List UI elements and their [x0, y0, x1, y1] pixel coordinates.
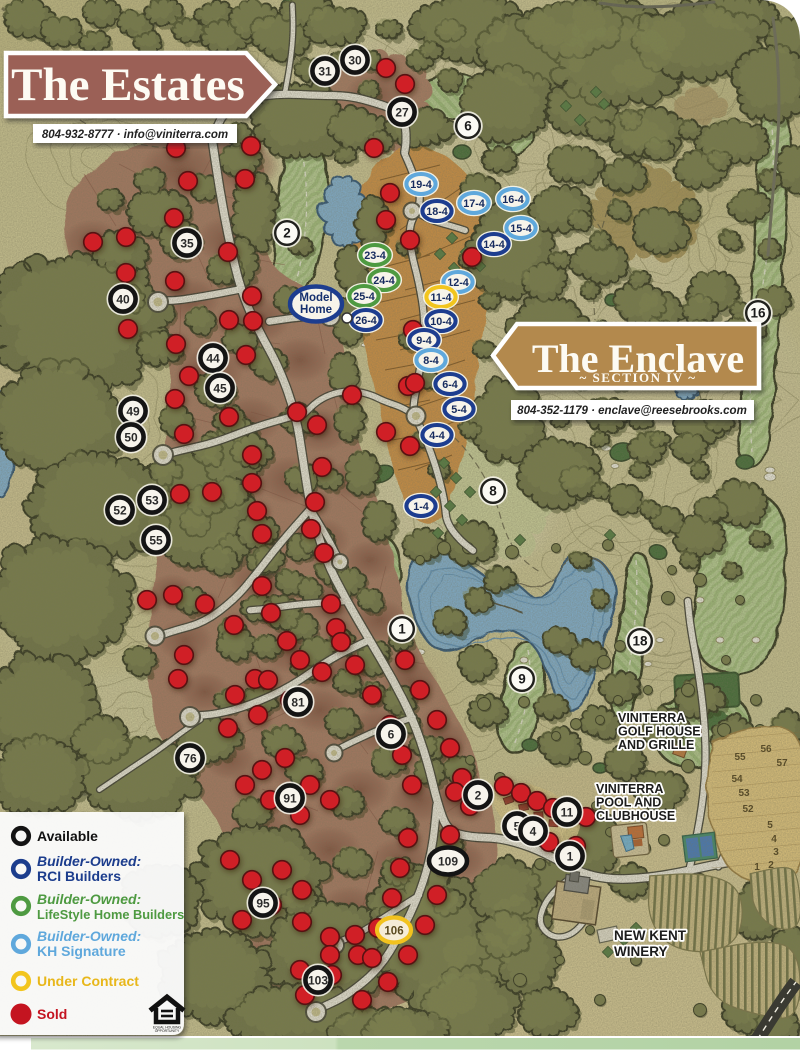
svg-text:26-4: 26-4: [355, 315, 377, 327]
svg-text:GOLF HOUSE: GOLF HOUSE: [618, 725, 701, 739]
svg-text:14-4: 14-4: [483, 239, 505, 251]
svg-text:OPPORTUNITY: OPPORTUNITY: [155, 1029, 180, 1033]
svg-text:44: 44: [206, 351, 220, 365]
svg-text:10-4: 10-4: [430, 316, 452, 328]
svg-text:55: 55: [149, 533, 163, 547]
svg-text:POOL AND: POOL AND: [596, 796, 661, 810]
svg-text:Under Contract: Under Contract: [37, 973, 139, 989]
svg-text:49: 49: [126, 404, 140, 418]
svg-text:11: 11: [561, 805, 574, 819]
svg-text:2: 2: [475, 788, 482, 802]
svg-text:6: 6: [464, 119, 472, 134]
svg-text:91: 91: [283, 791, 297, 805]
svg-text:Builder-Owned:: Builder-Owned:: [37, 928, 141, 944]
svg-text:23-4: 23-4: [364, 250, 386, 262]
svg-text:24-4: 24-4: [373, 275, 395, 287]
svg-text:8-4: 8-4: [423, 355, 439, 367]
svg-text:109: 109: [438, 855, 458, 869]
svg-text:95: 95: [256, 896, 270, 910]
svg-text:804-932-8777 · info@viniterr: 804-932-8777 · info@viniterra.com: [42, 129, 228, 141]
svg-text:27: 27: [395, 105, 409, 119]
svg-text:KH Signature: KH Signature: [37, 943, 126, 959]
svg-text:50: 50: [124, 430, 138, 444]
svg-text:~ SECTION IV ~: ~ SECTION IV ~: [579, 370, 696, 385]
svg-text:17-4: 17-4: [463, 198, 485, 210]
svg-text:NEW KENT: NEW KENT: [614, 928, 687, 943]
svg-text:VINITERRA: VINITERRA: [618, 711, 685, 725]
svg-text:RCI Builders: RCI Builders: [37, 868, 121, 884]
svg-text:The Estates: The Estates: [11, 59, 245, 111]
svg-text:76: 76: [183, 751, 197, 765]
svg-text:18-4: 18-4: [426, 206, 448, 218]
svg-text:4-4: 4-4: [429, 430, 445, 442]
svg-text:16-4: 16-4: [502, 194, 524, 206]
svg-text:53: 53: [145, 493, 159, 507]
svg-text:AND GRILLE: AND GRILLE: [618, 738, 694, 752]
svg-text:15-4: 15-4: [510, 223, 532, 235]
svg-text:16: 16: [750, 306, 766, 321]
svg-text:52: 52: [113, 503, 127, 517]
svg-text:Builder-Owned:: Builder-Owned:: [37, 853, 141, 869]
svg-text:11-4: 11-4: [430, 292, 451, 304]
svg-text:106: 106: [384, 926, 403, 938]
svg-text:Available: Available: [37, 828, 98, 844]
svg-text:18: 18: [632, 634, 648, 649]
svg-text:6-4: 6-4: [442, 379, 458, 391]
svg-text:45: 45: [213, 381, 227, 395]
svg-text:LifeStyle Home Builders: LifeStyle Home Builders: [37, 907, 184, 922]
svg-text:9-4: 9-4: [416, 335, 432, 347]
svg-text:6: 6: [388, 727, 395, 741]
svg-text:Sold: Sold: [37, 1006, 67, 1022]
svg-text:31: 31: [318, 64, 332, 78]
svg-text:Builder-Owned:: Builder-Owned:: [37, 891, 141, 907]
svg-text:VINITERRA: VINITERRA: [596, 782, 663, 796]
svg-text:CLUBHOUSE: CLUBHOUSE: [596, 809, 675, 823]
svg-text:5-4: 5-4: [451, 404, 467, 416]
svg-text:35: 35: [180, 236, 194, 250]
svg-text:1-4: 1-4: [413, 501, 429, 513]
svg-text:25-4: 25-4: [353, 291, 375, 303]
svg-text:WINERY: WINERY: [614, 944, 668, 959]
svg-text:Home: Home: [300, 304, 332, 316]
svg-text:4: 4: [530, 824, 537, 838]
svg-text:40: 40: [116, 292, 130, 306]
svg-text:Model: Model: [299, 292, 332, 304]
svg-text:8: 8: [489, 484, 497, 499]
svg-text:9: 9: [518, 672, 526, 687]
svg-text:1: 1: [567, 849, 574, 863]
svg-text:19-4: 19-4: [410, 179, 432, 191]
svg-text:30: 30: [348, 53, 362, 67]
svg-text:103: 103: [308, 973, 328, 987]
svg-text:804-352-1179 · enclave@reese: 804-352-1179 · enclave@reesebrooks.com: [517, 405, 747, 417]
svg-text:1: 1: [398, 622, 406, 637]
svg-text:81: 81: [291, 695, 305, 709]
svg-text:2: 2: [283, 226, 291, 241]
